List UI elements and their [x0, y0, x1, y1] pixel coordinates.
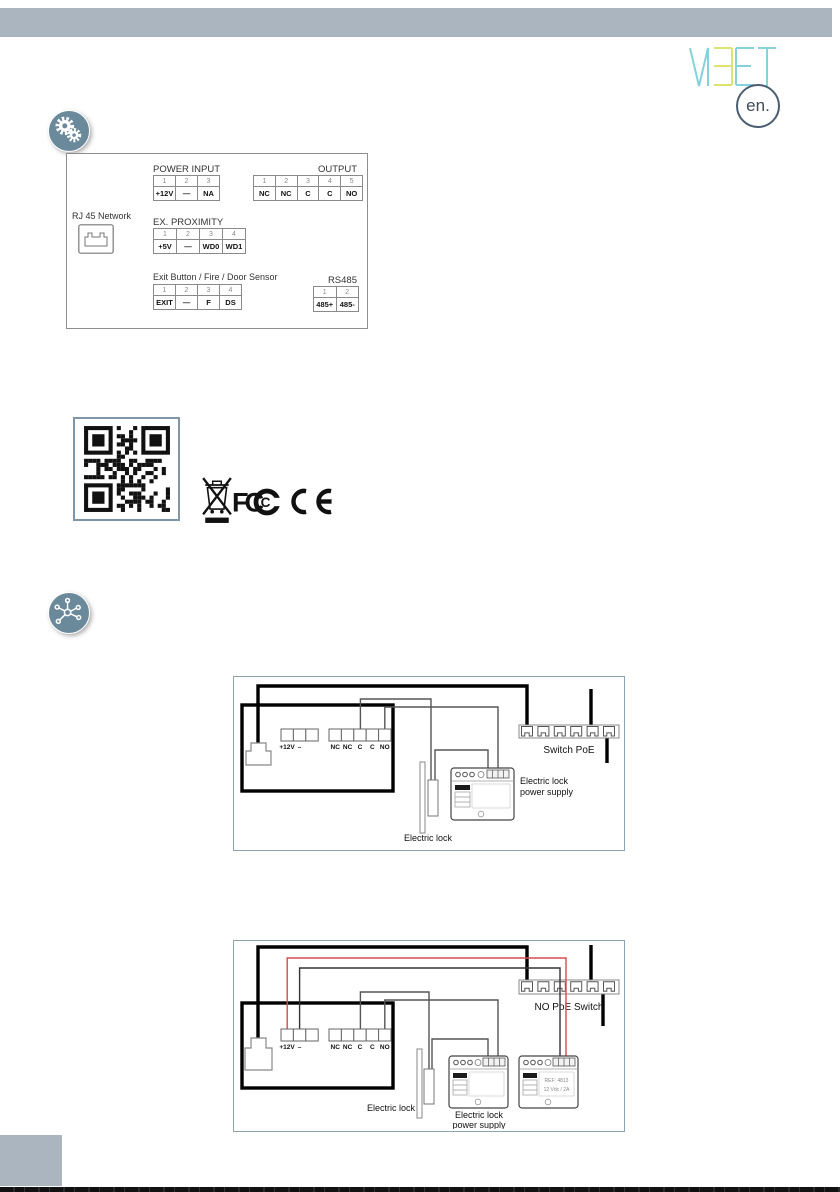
wiring-diagram-no-poe-svg: NO PoE Switch +12V – NC NC C C NO Electr…	[234, 941, 622, 1129]
electric-lock: Electric lock	[404, 762, 453, 843]
svg-text:NC: NC	[331, 1044, 341, 1051]
output-title: OUTPUT	[253, 164, 357, 175]
relay-terminal: NC NC C C NO	[329, 729, 391, 751]
rj45-jack-icon	[78, 224, 114, 254]
svg-text:C: C	[370, 744, 375, 751]
svg-text:Switch PoE: Switch PoE	[543, 745, 594, 756]
svg-text:–: –	[298, 744, 302, 751]
poe-switch: Switch PoE	[519, 725, 619, 756]
svg-text:Electric lock: Electric lock	[455, 1110, 504, 1120]
lock-power-supply	[451, 768, 514, 820]
svg-text:Electric lock: Electric lock	[520, 776, 569, 786]
network-hub-icon	[49, 593, 88, 632]
svg-text:–: –	[298, 1044, 302, 1051]
ex-proximity-table: 1 2 3 4 +5V — WD0 WD1	[153, 228, 246, 254]
svg-text:+12V: +12V	[279, 1044, 295, 1051]
wire-12v-positive	[287, 958, 566, 1059]
gears-icon	[49, 111, 88, 150]
rs485-table: 1 2 485+ 485-	[313, 286, 359, 312]
dc-power-supply: REF: 4813 12 Vdc / 2A	[519, 1056, 578, 1108]
footer-page-block	[0, 1135, 62, 1186]
power-terminal: +12V –	[279, 729, 318, 751]
lock-power-supply	[449, 1056, 508, 1108]
rj45-plug	[245, 1038, 272, 1070]
connector-pinout-panel: POWER INPUT 1 2 3 +12V — NA OUTPUT 1 2 3…	[66, 153, 368, 329]
electric-lock: Electric lock	[367, 1049, 434, 1118]
language-badge: en.	[736, 84, 780, 128]
svg-text:NC: NC	[343, 1044, 353, 1051]
weee-icon	[202, 477, 232, 524]
power-terminal: +12V –	[279, 1029, 318, 1051]
ce-logo	[283, 487, 333, 516]
power-input-title: POWER INPUT	[153, 164, 220, 175]
output-table: 1 2 3 4 5 NC NC C C NO	[253, 175, 363, 201]
language-badge-label: en.	[746, 96, 770, 116]
power-input-table: 1 2 3 +12V — NA	[153, 175, 220, 201]
installation-section-icon	[48, 592, 90, 634]
relay-terminal: NC NC C C NO	[329, 1029, 391, 1051]
rs485-title: RS485	[313, 275, 357, 286]
wiring-diagram-poe: +12V – NC NC C C NO Switch PoE Electric …	[233, 676, 625, 851]
svg-text:NC: NC	[331, 744, 341, 751]
svg-text:C: C	[370, 1044, 375, 1051]
svg-text:NO: NO	[380, 1044, 390, 1051]
qr-code-frame	[73, 417, 180, 521]
svg-text:power supply: power supply	[520, 787, 574, 797]
svg-text:power supply: power supply	[452, 1120, 506, 1129]
meet-logo	[688, 46, 778, 88]
rj45-network-label: RJ 45 Network	[72, 211, 131, 221]
wiring-diagram-no-poe: NO PoE Switch +12V – NC NC C C NO Electr…	[233, 940, 625, 1132]
exit-fire-door-table: 1 2 3 4 EXIT — F DS	[153, 284, 242, 310]
svg-text:Electric lock: Electric lock	[404, 833, 453, 843]
svg-text:C: C	[261, 495, 271, 510]
svg-text:12 Vdc / 2A: 12 Vdc / 2A	[544, 1087, 571, 1093]
svg-text:Electric lock: Electric lock	[367, 1103, 416, 1113]
svg-text:NO: NO	[380, 744, 390, 751]
wiring-diagram-poe-svg: +12V – NC NC C C NO Switch PoE Electric …	[234, 677, 622, 848]
ex-proximity-title: EX. PROXIMITY	[153, 217, 223, 228]
svg-text:C: C	[358, 1044, 363, 1051]
top-bar	[0, 8, 832, 37]
svg-text:REF: 4813: REF: 4813	[545, 1078, 569, 1084]
svg-text:NO PoE Switch: NO PoE Switch	[535, 1002, 604, 1013]
fcc-logo: F C C	[232, 487, 280, 517]
qr-code	[82, 424, 172, 514]
rj45-plug	[246, 743, 271, 765]
svg-text:NC: NC	[343, 744, 353, 751]
settings-section-icon	[48, 110, 90, 152]
exit-fire-door-title: Exit Button / Fire / Door Sensor	[153, 272, 278, 282]
svg-text:C: C	[358, 744, 363, 751]
svg-text:+12V: +12V	[279, 744, 295, 751]
footer-divider	[0, 1187, 840, 1192]
